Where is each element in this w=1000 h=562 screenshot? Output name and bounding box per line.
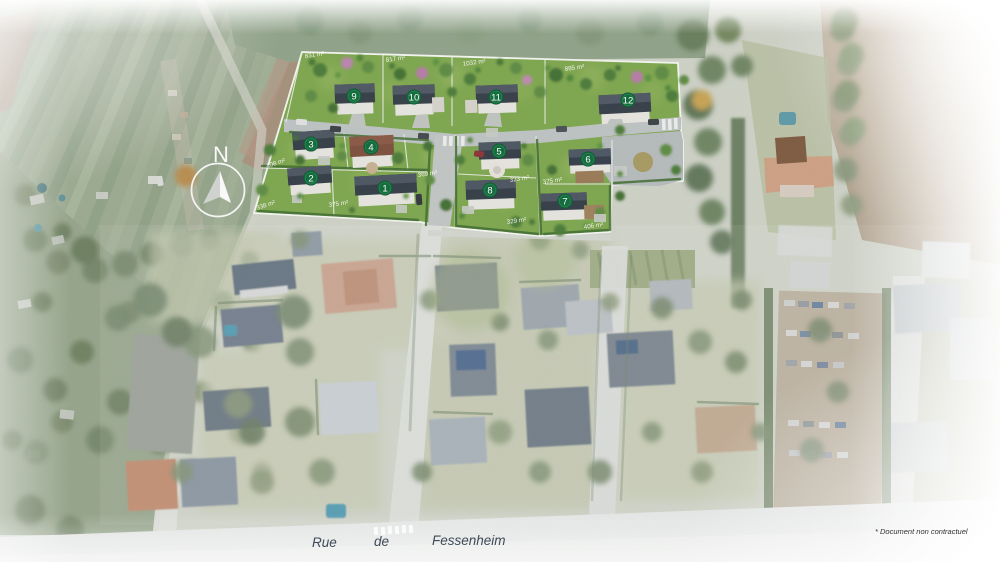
svg-text:* Document non contractuel: * Document non contractuel — [875, 527, 968, 536]
svg-text:Fessenheim: Fessenheim — [432, 533, 506, 548]
svg-text:Rue: Rue — [312, 535, 337, 550]
svg-text:de: de — [374, 534, 389, 549]
